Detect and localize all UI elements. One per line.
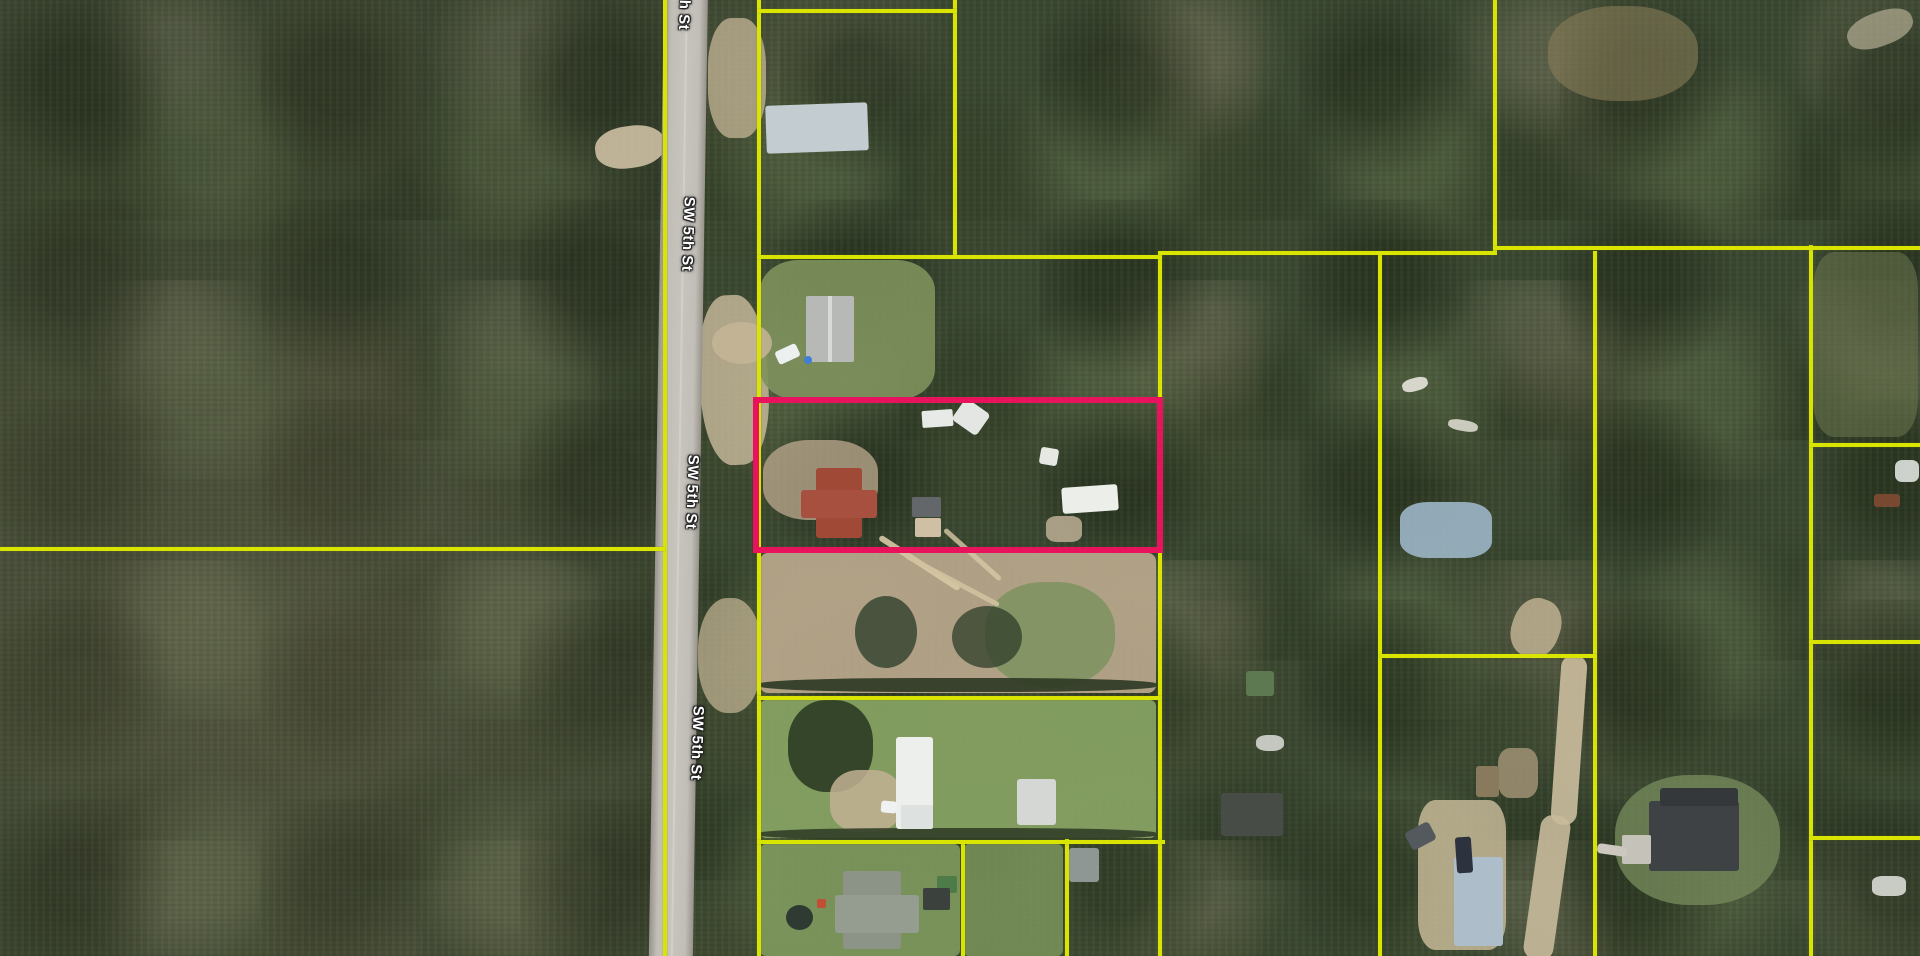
hedge-dirt-bottom <box>760 678 1156 692</box>
parcel-boundary-fr-line-1 <box>1809 443 1920 447</box>
parcel-boundary-top-parcel-right <box>953 0 957 258</box>
parcel-boundary-mid-col-1 <box>1158 253 1162 956</box>
parcel-boundary-topright-left <box>1493 0 1497 251</box>
shed-green-mid <box>1246 671 1274 696</box>
lawn-bottom-mid <box>963 844 1063 956</box>
parcel-boundary-mid-col-2 <box>1378 253 1382 956</box>
parcel-boundary-fr-line-3 <box>1809 836 1920 840</box>
car-white-gh <box>881 800 898 813</box>
house-gray-small <box>1069 848 1099 882</box>
parcel-boundary-dirt-bottom <box>757 696 1162 700</box>
greenhouse-canopy <box>901 805 933 829</box>
trampoline <box>786 905 813 930</box>
white-tarp-right <box>1895 460 1919 482</box>
road-label-sw-5th-st-2: SW 5th St <box>682 454 702 529</box>
aerial-map-canvas[interactable]: h StSW 5th StSW 5th StSW 5th St <box>0 0 1920 956</box>
house-dark-mid <box>1221 793 1283 836</box>
dead-field-topright <box>1548 6 1698 101</box>
dirt-road-right-b <box>1522 814 1572 956</box>
drive-parcel2 <box>712 322 772 364</box>
parcel-boundary-bottom-v2 <box>1065 839 1069 956</box>
roof-house2-ridge <box>828 296 832 362</box>
blue-tarp <box>1400 502 1492 558</box>
truck-dark <box>1455 836 1473 873</box>
road-label-sw-5th-st-3: SW 5th St <box>687 705 707 780</box>
roof-house-top <box>765 102 869 154</box>
dead-grass-tr <box>1842 1 1918 56</box>
parcel-boundary-row-line-c <box>1493 246 1920 250</box>
dirt-road-right-a <box>1550 654 1588 825</box>
white-scatter-2 <box>1447 417 1478 433</box>
house-charcoal-wing <box>1660 788 1738 806</box>
road-label-sw-5th-st-1: SW 5th St <box>678 196 698 271</box>
selected-parcel-outline[interactable] <box>753 397 1163 553</box>
west-forest-texture <box>0 0 666 956</box>
shed-brown <box>1476 766 1499 797</box>
parcel-boundary-row-line-b <box>1158 251 1497 255</box>
tree-shadow-dirt-1 <box>855 596 917 668</box>
parcel-boundary-col4-bottom <box>1380 654 1597 658</box>
dry-field-right <box>1813 252 1918 437</box>
parcel-boundary-right-col-1 <box>1593 251 1597 956</box>
house-bottom-wing <box>835 895 919 933</box>
road-label-sw-5th-st-0: h St <box>675 0 693 30</box>
white-scatter-1 <box>1401 375 1429 394</box>
house-charcoal-main <box>1649 801 1739 871</box>
parcel-boundary-bottom-v1 <box>961 841 965 956</box>
parcel-boundary-right-col-2 <box>1809 245 1813 956</box>
parcel-boundary-top-parcel-top <box>757 9 957 13</box>
tree-shadow-dirt-2 <box>952 606 1022 668</box>
shoulder-dirt-low <box>698 598 762 713</box>
hedge-gh-bottom <box>760 828 1156 840</box>
debris-pile <box>1498 748 1538 798</box>
white-debris-mid <box>1256 735 1284 751</box>
parcel-boundary-west-cross-line <box>0 547 665 551</box>
parcel-boundary-west-road-line <box>663 0 667 956</box>
shed2-greenhouse <box>1017 779 1056 825</box>
white-debris-br <box>1872 876 1906 896</box>
rust-vehicles <box>1874 494 1900 507</box>
parcel-boundary-fr-line-2 <box>1809 640 1920 644</box>
parcel-boundary-row-line-a <box>757 255 1162 259</box>
shed-dark <box>923 888 950 910</box>
parcel-boundary-lawn-bottom-line <box>757 840 1165 844</box>
barrel-blue <box>804 356 812 364</box>
toy-red <box>817 899 826 908</box>
